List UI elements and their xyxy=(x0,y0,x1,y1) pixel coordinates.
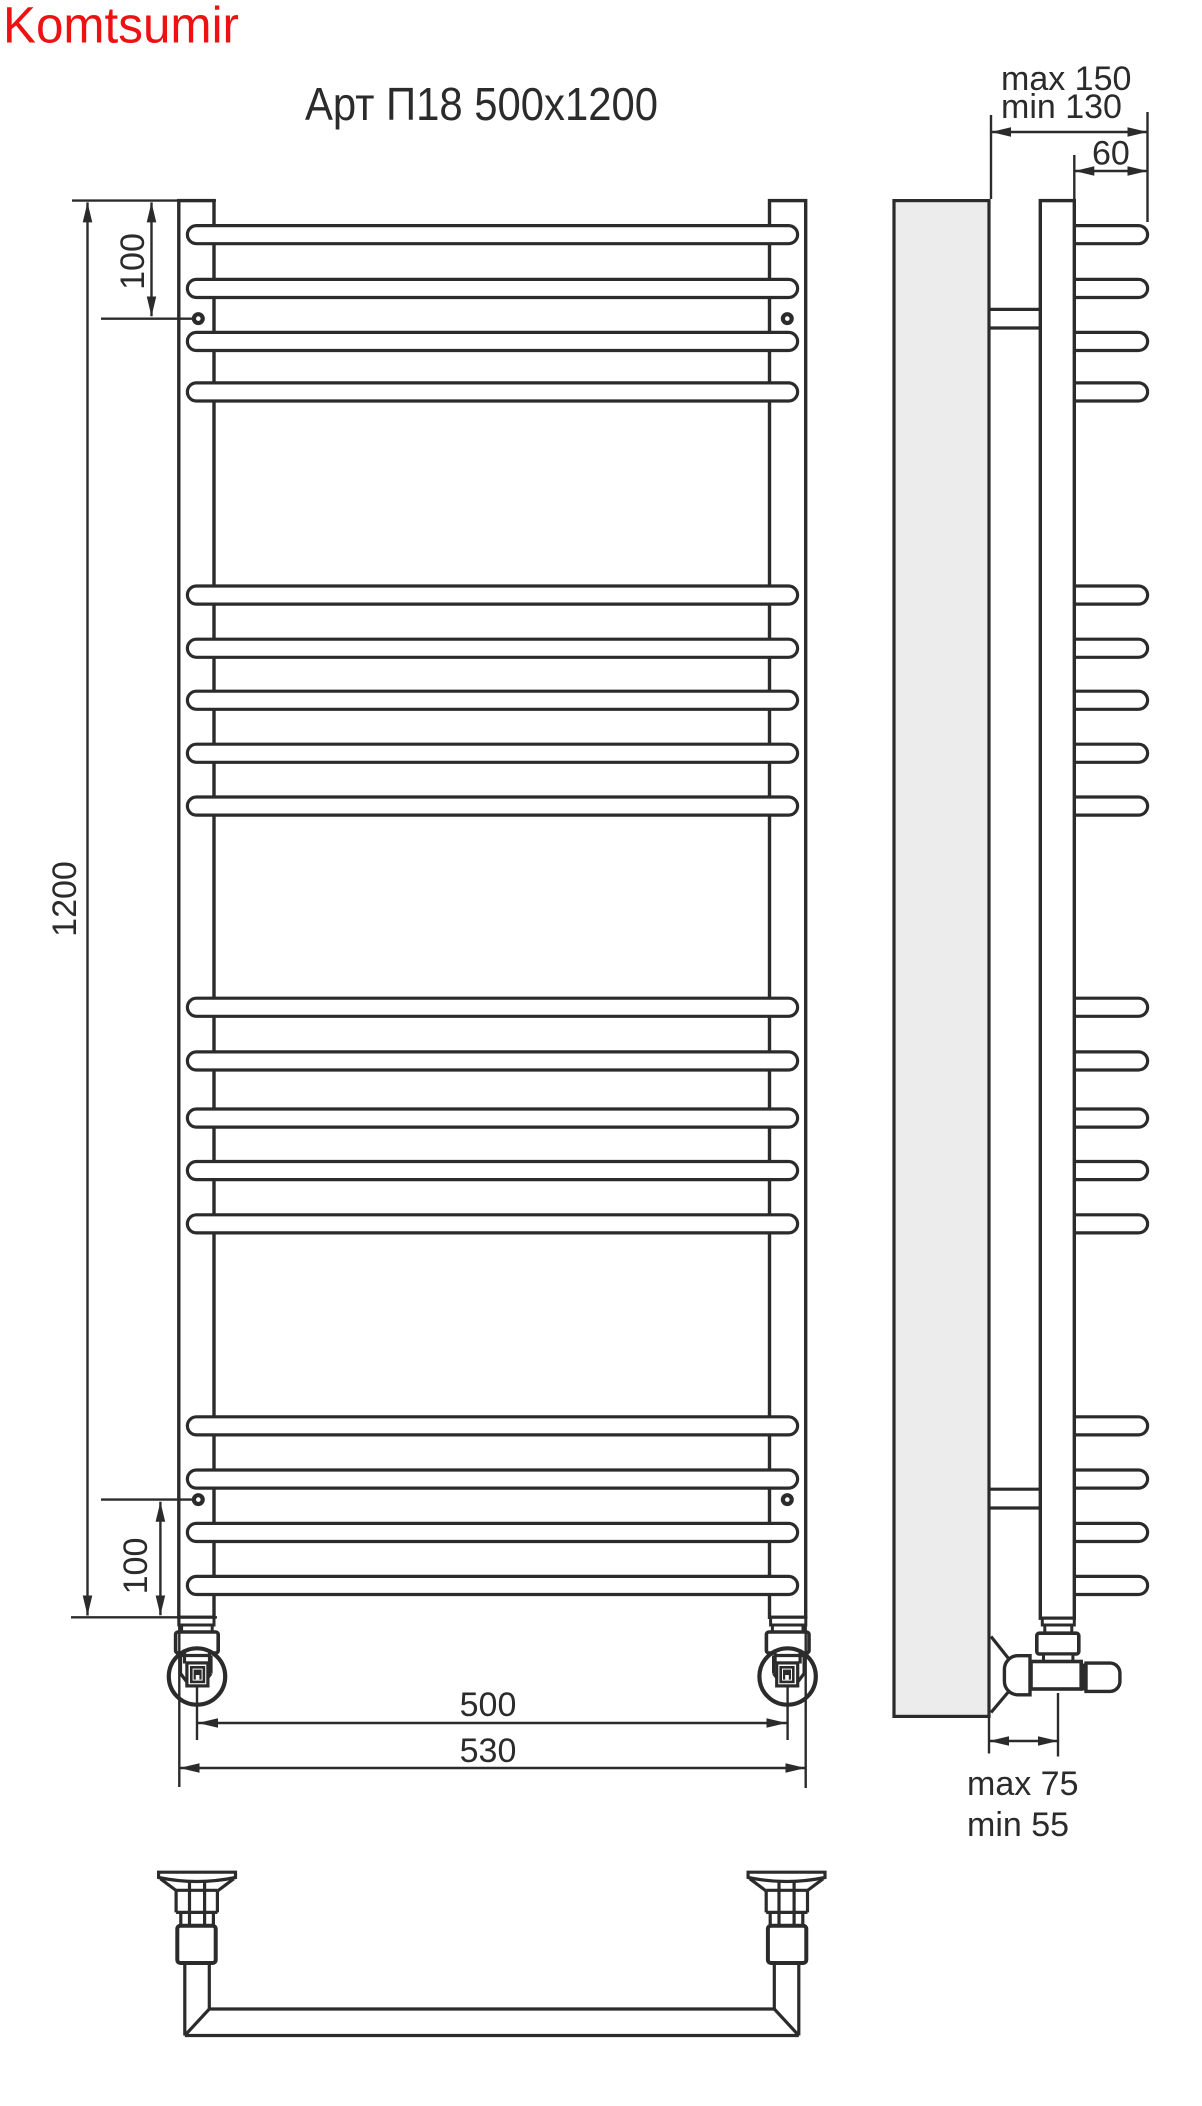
svg-text:max 75: max 75 xyxy=(967,1765,1079,1803)
svg-text:Арт П18 500x1200: Арт П18 500x1200 xyxy=(305,78,658,130)
svg-text:100: 100 xyxy=(117,1538,155,1595)
svg-text:530: 530 xyxy=(460,1732,517,1770)
svg-text:1200: 1200 xyxy=(46,861,84,937)
svg-text:500: 500 xyxy=(460,1686,517,1724)
svg-text:60: 60 xyxy=(1092,135,1130,173)
svg-text:min 130: min 130 xyxy=(1001,88,1122,126)
svg-text:min 55: min 55 xyxy=(967,1806,1069,1844)
svg-text:Komtsumir: Komtsumir xyxy=(3,0,239,53)
svg-text:100: 100 xyxy=(114,233,152,290)
